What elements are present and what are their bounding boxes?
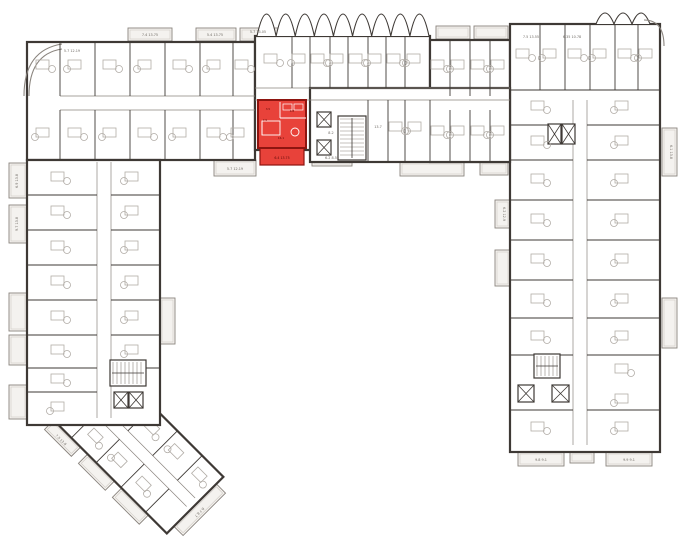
elevator-icon (548, 124, 561, 144)
area-label: 9.7 13.8 (15, 217, 19, 231)
balcony-outline (9, 385, 27, 419)
floorplan-svg: 7.5 13.88.7 8.73.54.87.516.16.4 13.755.7… (0, 0, 680, 551)
area-label: 6.2 12.9 (502, 207, 506, 221)
elevator-icon (317, 140, 331, 155)
area-label: 16.1 (278, 136, 284, 140)
area-label: 8.2 (328, 131, 333, 135)
balcony-outline (9, 293, 27, 331)
balcony (570, 452, 594, 463)
selected-unit[interactable]: 3.54.87.516.16.4 13.75 (258, 100, 306, 165)
area-label: 6.9 13.8 (15, 174, 19, 188)
balcony (474, 26, 508, 39)
elevator-icon (129, 392, 143, 408)
stairs-icon (110, 360, 146, 386)
area-label: 9.8 9.1 (535, 458, 547, 462)
area-label: 7.5 (263, 118, 268, 122)
balcony (495, 250, 510, 286)
area-label: 4.8 (290, 109, 295, 113)
scallop-edge (257, 14, 429, 36)
balcony (480, 162, 508, 175)
area-label: 9.9 9.1 (623, 458, 635, 462)
area-label: 5.7 13.05 (250, 30, 266, 34)
balcony (436, 26, 470, 39)
area-label: 6.2 8.55 (325, 156, 339, 160)
area-label: 3.5 (266, 107, 271, 111)
balcony (9, 293, 27, 331)
balcony (400, 162, 464, 176)
elevator-icon (562, 124, 575, 144)
area-label: 6.1 13.8 (669, 145, 673, 159)
area-label: 6.35 10.78 (563, 35, 581, 39)
stairs-icon (338, 116, 366, 160)
floorplan-canvas: 7.5 13.88.7 8.73.54.87.516.16.4 13.755.7… (0, 0, 680, 551)
elevator-icon (114, 392, 128, 408)
area-label: 7.4 13.75 (142, 33, 158, 37)
scallop-edge (596, 13, 650, 24)
balcony-outline (570, 452, 594, 463)
stairs-icon (534, 354, 560, 378)
area-label: 6.4 13.75 (274, 156, 289, 160)
balcony (662, 298, 677, 348)
area-label: 5.4 13.75 (207, 33, 223, 37)
balcony-outline (9, 335, 27, 365)
balcony (160, 298, 175, 344)
area-label: 5.7 12.19 (227, 167, 243, 171)
elevator-icon (518, 385, 534, 402)
area-label: 5.7 12.19 (64, 49, 80, 53)
area-label: 7.5 13.55 (523, 35, 539, 39)
elevator-icon (317, 112, 331, 127)
elevator-icon (552, 385, 569, 402)
balcony (9, 335, 27, 365)
area-label: 13.7 (374, 125, 382, 129)
balcony (9, 385, 27, 419)
